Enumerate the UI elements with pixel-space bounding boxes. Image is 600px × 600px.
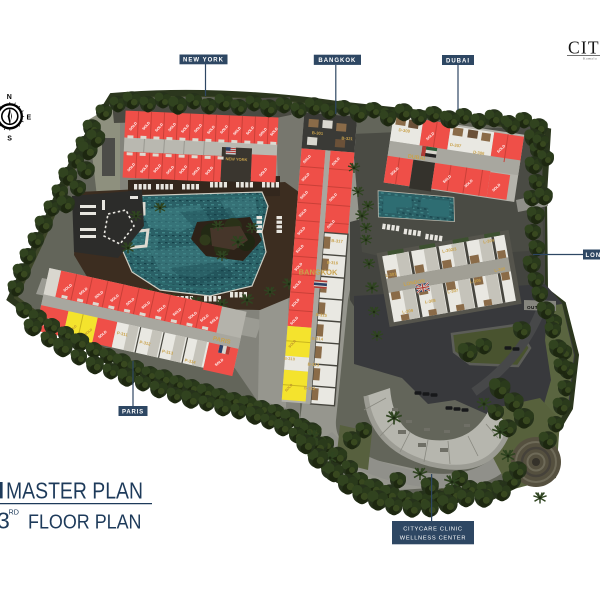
svg-text:B-314: B-314 <box>311 336 323 342</box>
svg-text:S: S <box>7 136 12 143</box>
svg-text:B-317: B-317 <box>331 238 343 244</box>
svg-text:LON: LON <box>586 253 600 259</box>
svg-text:B-301: B-301 <box>312 130 324 136</box>
svg-text:B-312: B-312 <box>304 385 316 391</box>
svg-text:WELLNESS CENTER: WELLNESS CENTER <box>400 536 466 542</box>
svg-text:B-316: B-316 <box>327 260 339 266</box>
svg-text:RD: RD <box>9 508 19 517</box>
svg-text:OUT: OUT <box>527 305 538 310</box>
svg-text:FLOOR PLAN: FLOOR PLAN <box>28 510 142 533</box>
svg-text:E: E <box>27 114 32 121</box>
svg-text:BANGKOK: BANGKOK <box>318 58 356 64</box>
svg-text:BANGKOK: BANGKOK <box>299 268 338 277</box>
svg-text:PARIS: PARIS <box>122 409 144 415</box>
svg-text:NEW YORK: NEW YORK <box>183 58 224 64</box>
svg-text:B-310: B-310 <box>284 356 296 362</box>
svg-text:CITY: CITY <box>568 38 600 58</box>
svg-text:NEW YORK: NEW YORK <box>225 156 247 162</box>
svg-text:MASTER PLAN: MASTER PLAN <box>6 477 143 503</box>
svg-text:B-321: B-321 <box>341 135 353 141</box>
svg-text:B-315: B-315 <box>315 312 327 318</box>
svg-text:N: N <box>7 94 12 101</box>
svg-text:DUBAI: DUBAI <box>446 58 470 64</box>
svg-text:Kamala: Kamala <box>583 56 597 60</box>
svg-text:CITYCARE CLINIC: CITYCARE CLINIC <box>403 527 462 533</box>
svg-text:B-313: B-313 <box>307 362 319 368</box>
